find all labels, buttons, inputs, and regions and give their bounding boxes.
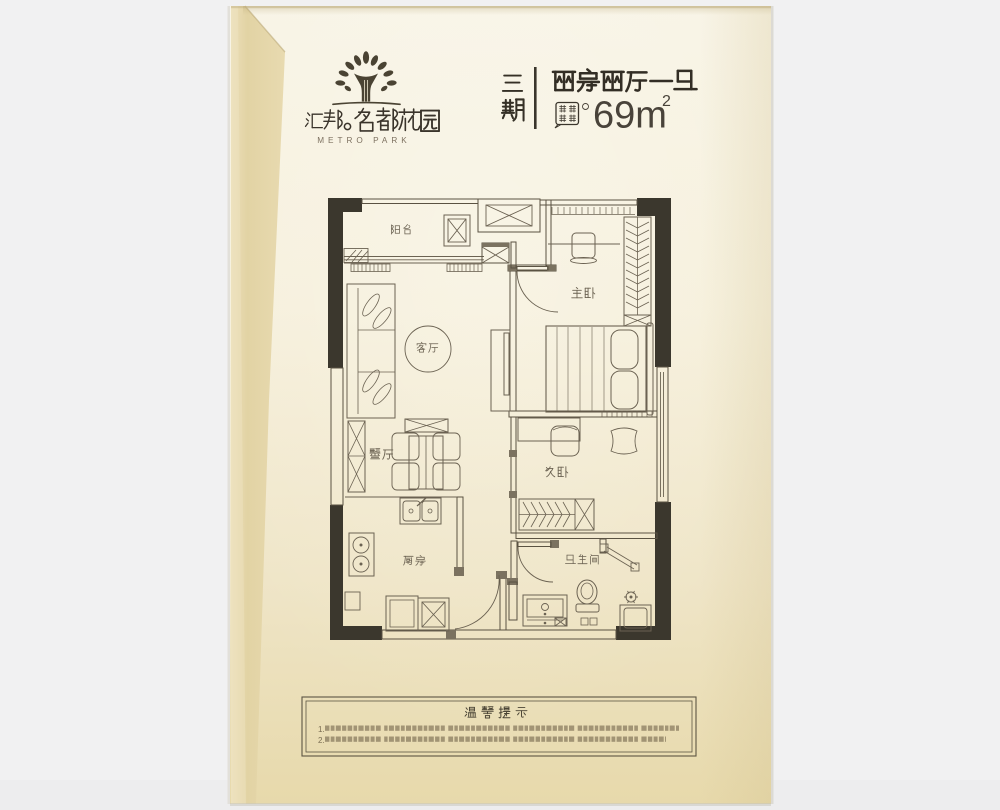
svg-text:METRO PARK: METRO PARK	[317, 136, 411, 145]
svg-text:69m: 69m	[593, 95, 667, 137]
svg-text:2.: 2.	[318, 736, 325, 745]
svg-text:1.: 1.	[318, 725, 325, 734]
svg-text:2: 2	[662, 93, 671, 110]
